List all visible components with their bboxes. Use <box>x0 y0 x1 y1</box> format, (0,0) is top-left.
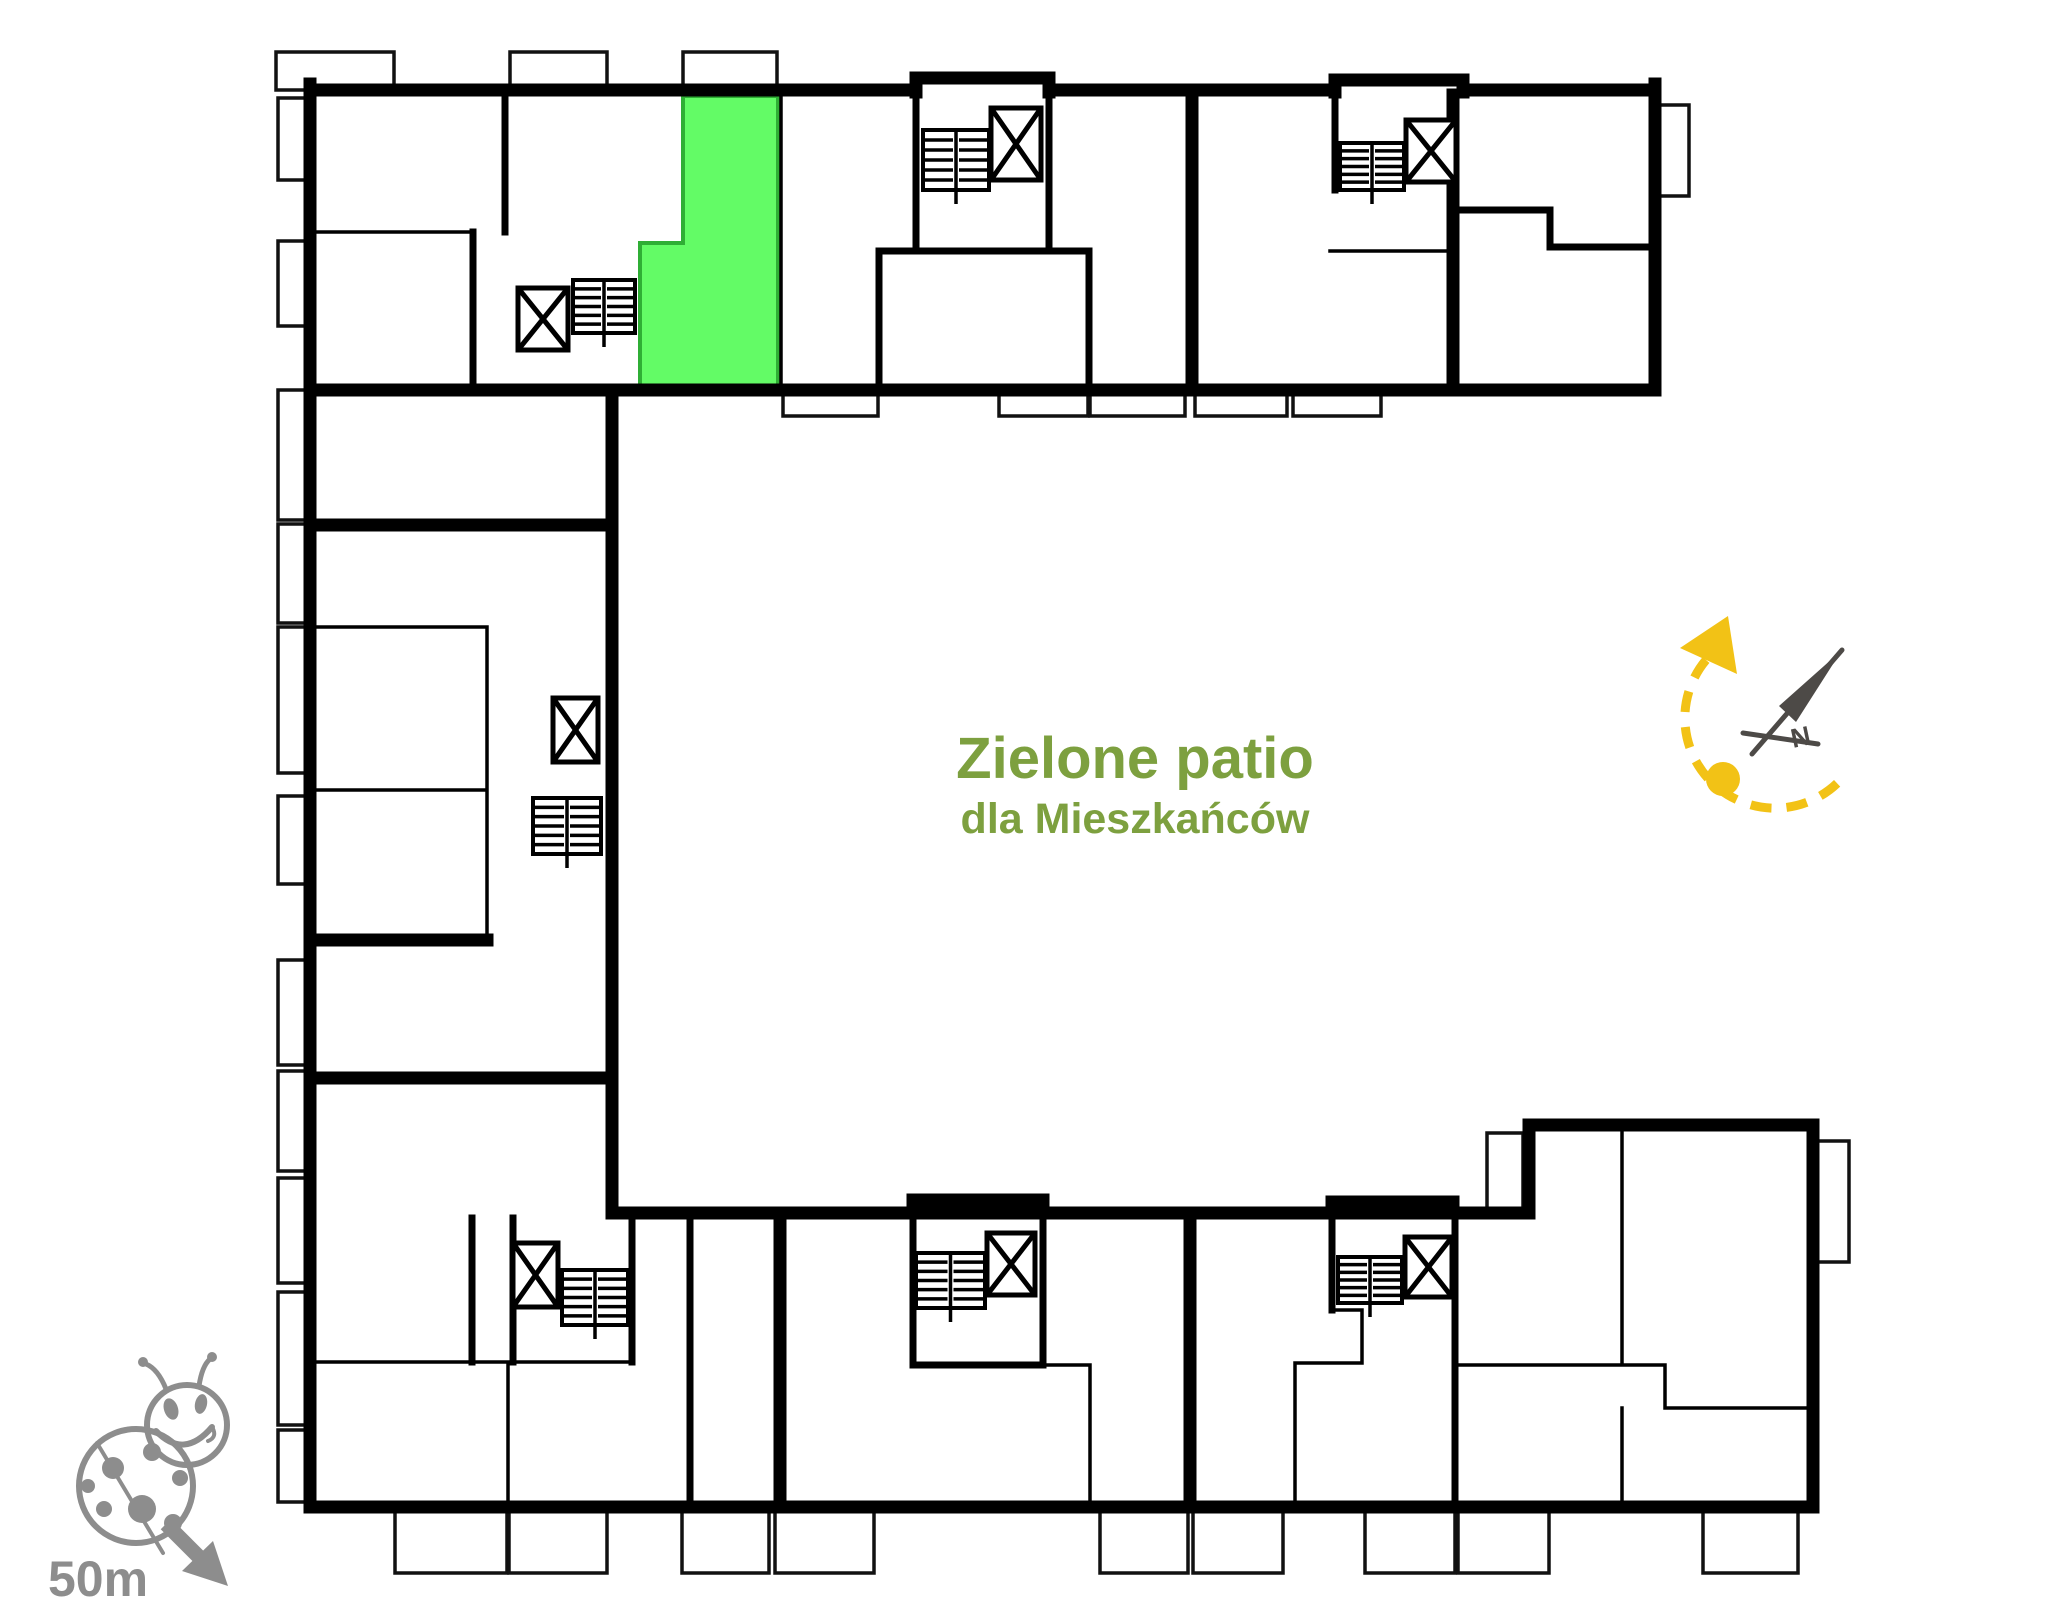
balcony <box>1100 1507 1188 1573</box>
elevator-icon <box>1406 120 1456 182</box>
elevator-icon <box>513 1243 558 1307</box>
elevator-icon <box>553 698 598 762</box>
balcony <box>682 1507 769 1573</box>
balcony <box>1703 1507 1798 1573</box>
balcony <box>1195 394 1287 416</box>
floor-plan: Zielone patio dla Mieszkańców N 50m <box>0 0 2048 1623</box>
balcony <box>1487 1133 1523 1213</box>
balcony <box>1365 1507 1455 1573</box>
balcony <box>1293 394 1381 416</box>
balcony <box>1090 394 1185 416</box>
elevator-icon <box>987 1233 1035 1295</box>
balcony <box>775 1507 874 1573</box>
balcony <box>1458 1507 1549 1573</box>
balcony <box>999 394 1088 416</box>
elevator-icon <box>991 108 1041 180</box>
elevator-icon <box>518 288 568 350</box>
balcony <box>395 1507 507 1573</box>
courtyard-label: Zielone patio <box>956 726 1314 791</box>
balcony <box>783 394 878 416</box>
sun-dot-icon <box>1706 762 1740 796</box>
balcony <box>1193 1507 1283 1573</box>
balcony <box>509 1507 607 1573</box>
courtyard-sublabel: dla Mieszkańców <box>961 795 1310 843</box>
elevator-icon <box>1405 1237 1452 1297</box>
scale-label: 50m <box>48 1551 148 1607</box>
